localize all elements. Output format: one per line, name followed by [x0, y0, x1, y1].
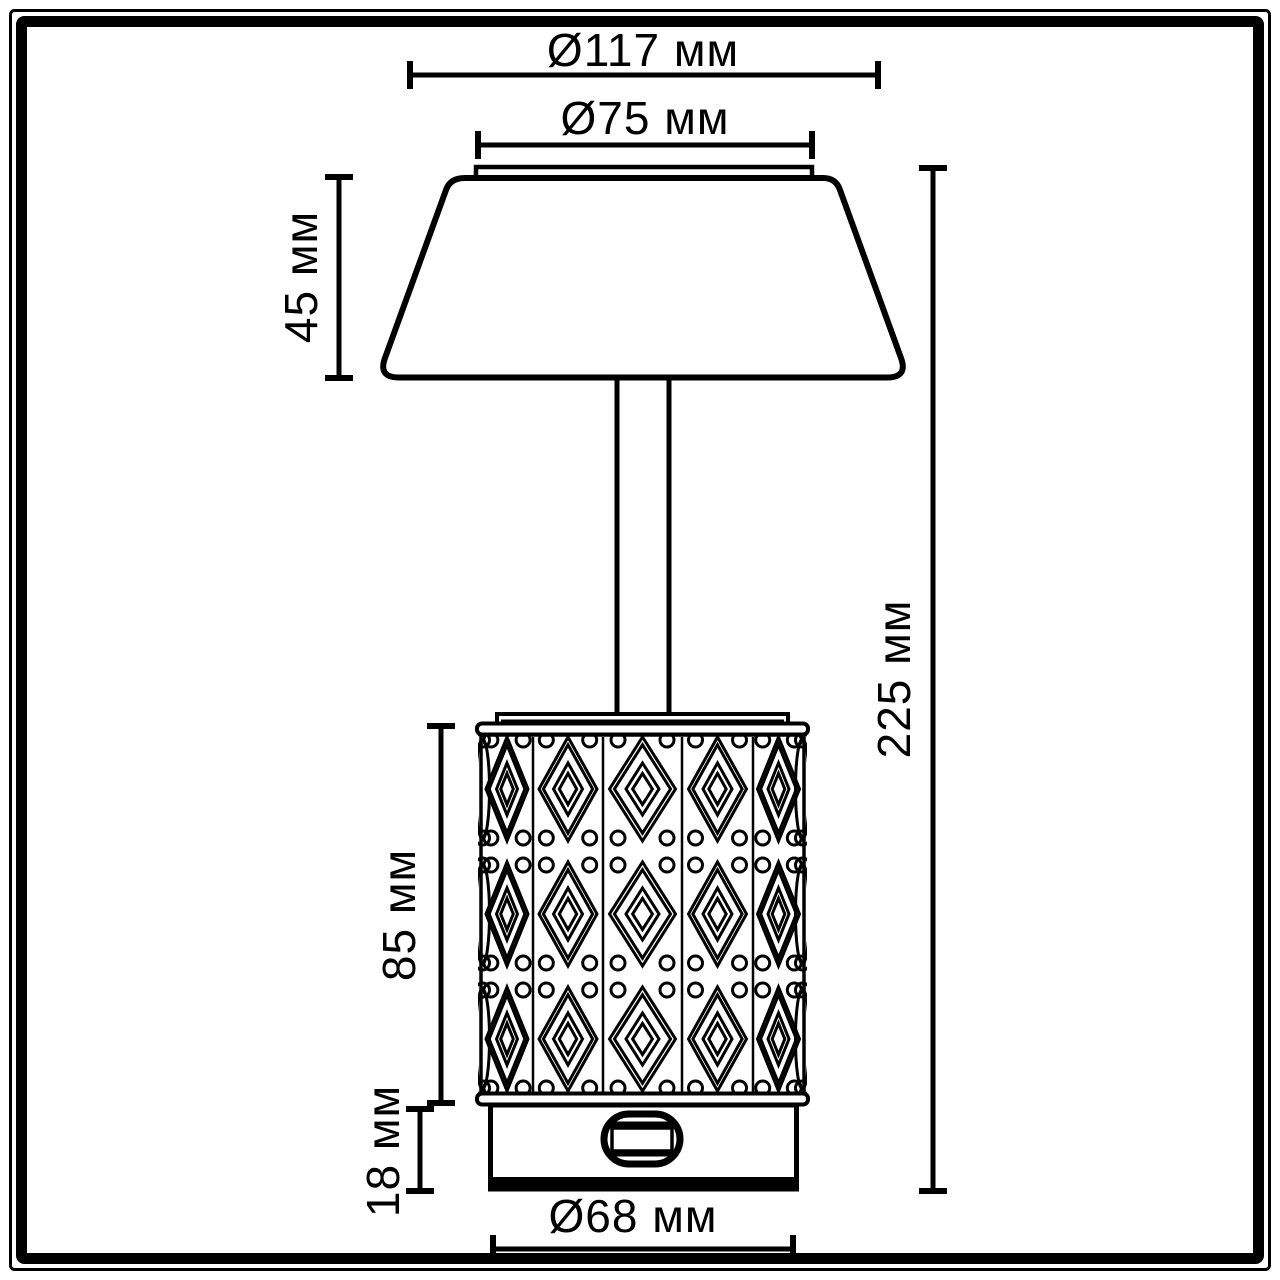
- dim-shade-inner-diameter-label: Ø75 мм: [561, 92, 730, 144]
- lamp-base-foot: [488, 1177, 799, 1190]
- cylinder-top-cap: [477, 724, 808, 735]
- dim-base-height-label: 18 мм: [357, 1085, 409, 1217]
- dim-shade-height: [325, 177, 353, 378]
- lamp-stem: [617, 372, 669, 720]
- dim-crystal-height: [427, 726, 455, 1103]
- lamp-dimension-diagram: Ø117 мм Ø75 мм 45 мм 225 мм 85 мм 18 мм: [0, 0, 1280, 1280]
- dim-shade-height-label: 45 мм: [275, 211, 327, 343]
- power-button-key: [612, 1128, 672, 1151]
- diagram-canvas: Ø117 мм Ø75 мм 45 мм 225 мм 85 мм 18 мм: [0, 0, 1280, 1280]
- dim-total-height-label: 225 мм: [868, 600, 920, 759]
- power-button: [604, 1114, 680, 1164]
- dim-crystal-height-label: 85 мм: [373, 849, 425, 981]
- dim-top-diameter-label: Ø117 мм: [547, 24, 739, 76]
- dim-base-height: [406, 1109, 434, 1191]
- dim-total-height: [919, 168, 947, 1191]
- lamp-shade: [383, 178, 903, 378]
- dim-base-diameter-label: Ø68 мм: [549, 1190, 718, 1242]
